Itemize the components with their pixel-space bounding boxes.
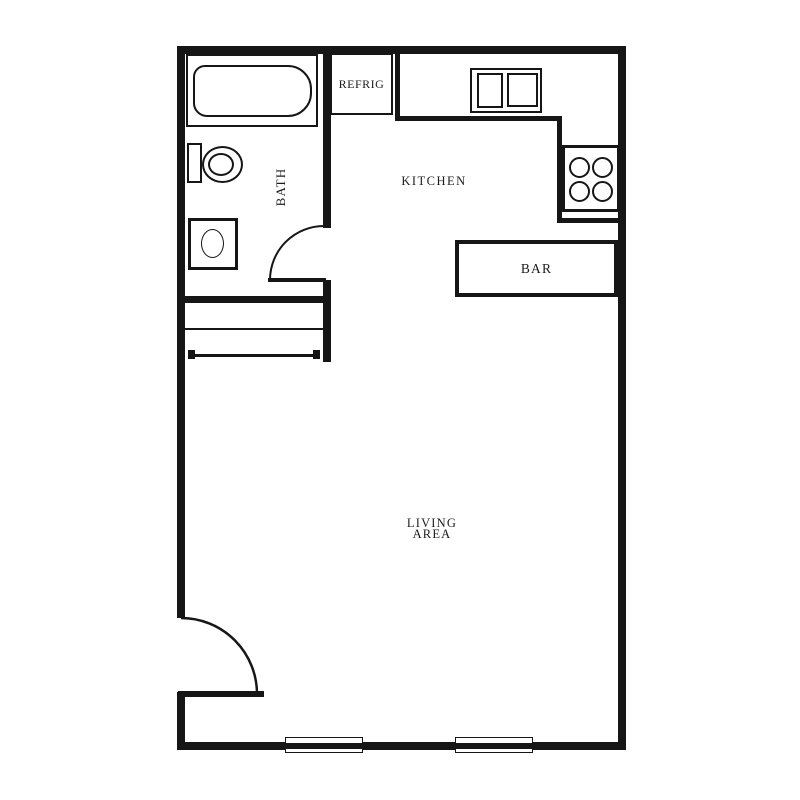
entry-door-swing-icon	[181, 618, 257, 694]
bath-room-label: BATH	[273, 157, 289, 217]
living-area-label-line2: AREA	[382, 529, 482, 540]
window-glass-line	[286, 743, 362, 749]
window-glass-line	[456, 743, 532, 749]
floor-plan: REFRIG BAR BATH KITCHEN LIVING AREA	[0, 0, 800, 800]
living-area-label: LIVING AREA	[382, 518, 482, 540]
window-icon-left	[285, 737, 363, 753]
door-swing-arcs	[0, 0, 800, 800]
window-icon-right	[455, 737, 533, 753]
kitchen-room-label: KITCHEN	[384, 174, 484, 189]
bath-door-swing-icon	[270, 226, 324, 280]
